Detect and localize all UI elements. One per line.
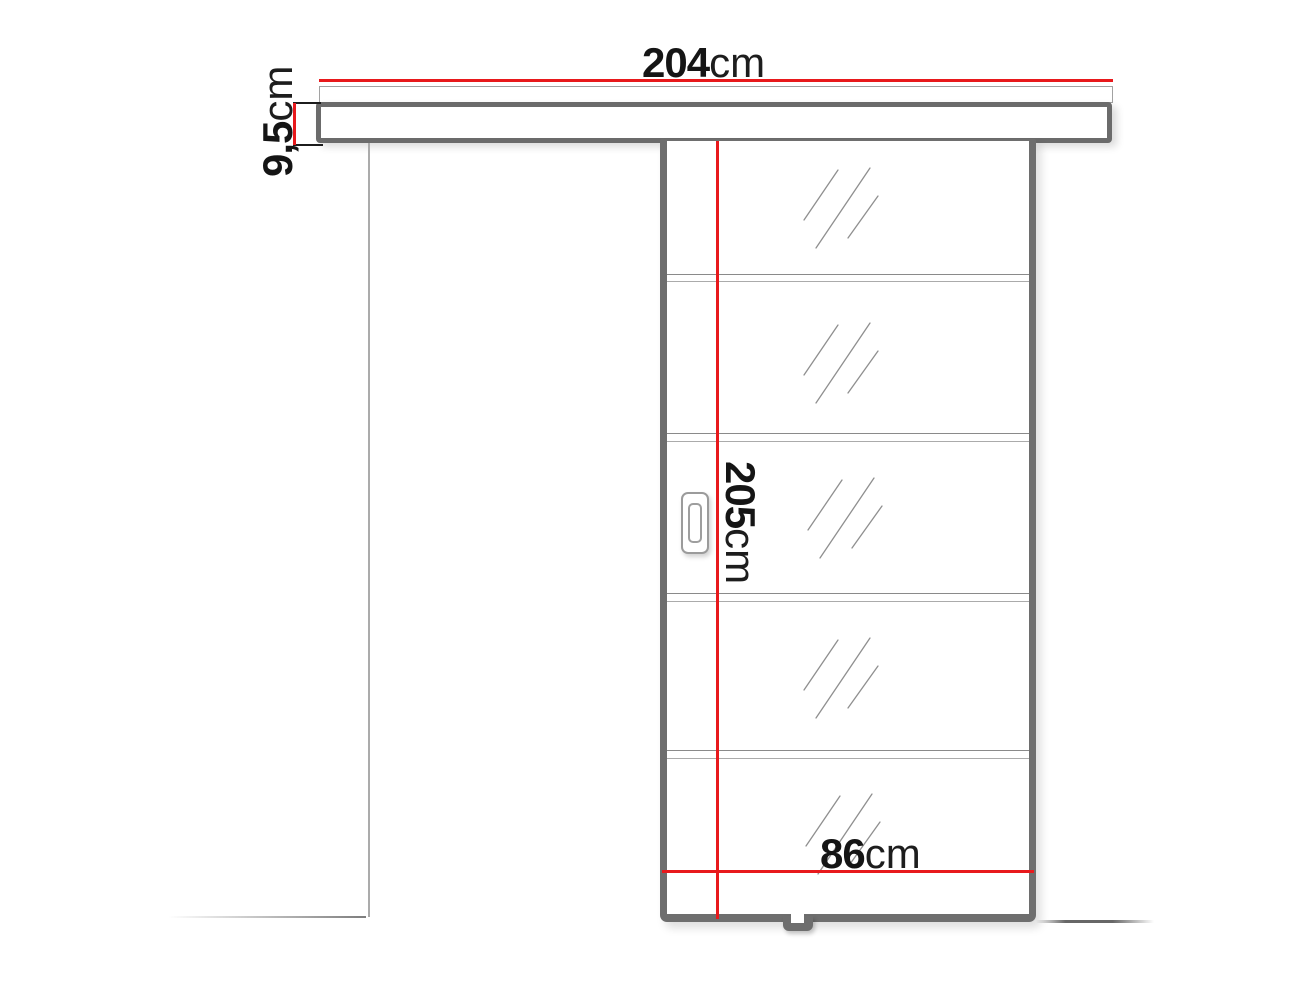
glass-hatch-icon <box>796 315 886 407</box>
glass-separator <box>667 601 1029 602</box>
diagram-canvas: 204cm 9,5cm <box>0 0 1312 984</box>
glass-separator <box>667 593 1029 594</box>
floor-guide-notch <box>791 912 804 923</box>
wall-line <box>368 143 370 917</box>
glass-hatch-icon <box>800 470 890 562</box>
dimension-value: 204 <box>642 39 709 86</box>
glass-hatch-icon <box>796 630 886 722</box>
glass-separator <box>667 758 1029 759</box>
glass-separator <box>667 433 1029 434</box>
dimension-value: 86 <box>820 830 865 877</box>
dimension-label-rail-width: 204cm <box>642 42 765 84</box>
dimension-unit: cm <box>254 66 301 122</box>
rail-top-cover <box>319 86 1113 103</box>
dimension-unit: cm <box>709 39 765 86</box>
glass-separator <box>667 281 1029 282</box>
sliding-rail <box>316 102 1112 143</box>
glass-separator <box>667 441 1029 442</box>
dimension-label-rail-height: 9,5cm <box>257 66 299 177</box>
floor-line-left <box>168 916 366 918</box>
dimension-value: 205 <box>717 461 764 528</box>
glass-separator <box>667 750 1029 751</box>
door-handle-recess <box>688 503 702 543</box>
dimension-label-door-height: 205cm <box>719 461 761 584</box>
glass-hatch-icon <box>796 160 886 252</box>
dimension-label-door-width: 86cm <box>820 833 921 875</box>
dimension-value: 9,5 <box>254 122 301 177</box>
floor-line-right <box>1036 920 1154 923</box>
dimension-unit: cm <box>717 528 764 584</box>
dimension-unit: cm <box>865 830 921 877</box>
glass-separator <box>667 274 1029 275</box>
